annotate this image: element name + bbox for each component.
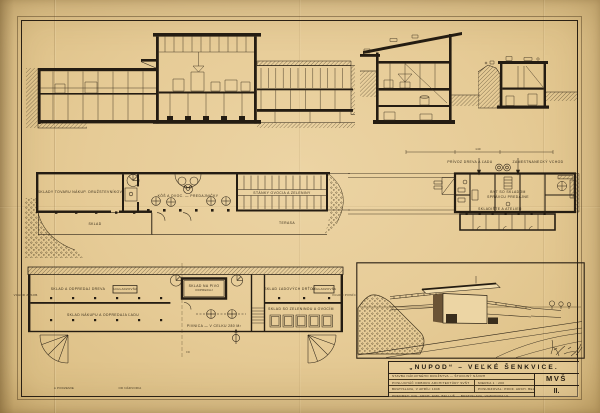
label-beer-2: ODPREDAJ — [195, 288, 213, 292]
label-level: ±0 — [186, 350, 190, 354]
section-b-ground-right — [546, 92, 578, 101]
caption-b: OD NÁDVORIA — [119, 386, 142, 390]
label-room-tr: SKLAD ĽADOVÝCH DRŤOV — [264, 287, 316, 291]
cross-section-b — [478, 50, 578, 120]
caption-a: A PODZEMIE — [54, 386, 74, 390]
label-stalls: STÁNKY OVOCIA A ZELENINY — [253, 191, 310, 195]
section-left-wing-interior — [40, 72, 158, 121]
label-dimension: 140 — [475, 147, 481, 151]
trees — [549, 301, 570, 309]
title-block-table: STAVBA NÁKUPNÉHO DRUŽSTVA — ŠTUDIJNÝ NÁV… — [389, 373, 535, 397]
title-block: „NUPOD“ – VEĽKÉ ŠENKVICE. STAVBA NÁKUPNÉ… — [388, 361, 579, 397]
label-beer-1: SKLAD NA PIVO — [189, 284, 220, 288]
label-flat-1: BYT SO SKLADOM — [490, 190, 526, 194]
detail-plan-stalls — [460, 213, 555, 230]
tb-row3-left: BRATISLAVA, V APRÍLI 1948 — [389, 386, 475, 392]
basement-stalls-right — [270, 315, 333, 327]
label-right-entry: VCHOD PIVNÍC — [332, 293, 356, 297]
basement-corridor — [252, 275, 265, 332]
fan-stair-left — [40, 335, 68, 363]
label-cellar: PIVNICA — V CELKU 280 M² — [187, 324, 241, 328]
sheet-mark: MVŠ — [534, 373, 579, 386]
label-staff-entry: ZAMESTNANECKÝ VCHOD — [513, 160, 564, 164]
label-storeroom: SKLADY TOVARU NÁKUP. DRUŽSTEVNÍKOV — [38, 190, 123, 194]
embankment-pebbles — [25, 198, 83, 258]
ground-floor-plan — [25, 146, 350, 258]
label-sklad: SKLAD — [88, 222, 101, 226]
detail-plan-end-wall — [575, 174, 579, 213]
label-room-bl: SKLAD NÁKUPU A ODPREDAJA ĽADU — [67, 313, 139, 317]
basement-top-wall — [28, 267, 343, 275]
detail-plan — [348, 140, 580, 264]
hill — [358, 295, 424, 354]
tb-row2-right: MIERKA 1 : 200 — [475, 381, 534, 385]
section-right-wing — [257, 61, 355, 123]
label-left-entry: VCHOD ZÁSOB. — [14, 293, 39, 297]
label-terasa: TERASA — [279, 221, 295, 225]
ground-mound — [478, 65, 500, 108]
paper-edge-shadow — [0, 0, 14, 413]
label-box-tr: SCHLADZOVŇA — [312, 287, 336, 291]
basement-cellar — [184, 303, 246, 319]
tb-row2-left: POSLUCHÁČ ODBORU ARCHITEKTÚRY SVŠT — [389, 380, 475, 386]
tb-row3-right: POSUDZOVAL: PROF. ARCH. BELLUŠ — [475, 387, 534, 391]
roof-slab — [363, 32, 462, 54]
right-wing — [487, 301, 561, 318]
plan-terrace — [38, 174, 350, 235]
cross-section-a — [360, 24, 480, 128]
drawing-sheet: SKLADY TOVARU NÁKUP. DRUŽSTEVNÍKOV SKLAD… — [0, 0, 600, 413]
tb-row1: STAVBA NÁKUPNÉHO DRUŽSTVA — ŠTUDIJNÝ NÁV… — [389, 374, 485, 378]
perspective-view — [356, 262, 585, 359]
central-block — [422, 276, 500, 324]
label-flat-2: SPRÁVCU PREDAJNE — [487, 195, 529, 199]
label-box-tl: SCHLADZOVŇA — [113, 287, 137, 291]
label-hall: KÔŠ A OVOC. — PREDAJNIČKY — [158, 194, 219, 198]
plan-market-hall — [147, 174, 230, 211]
longitudinal-section — [25, 22, 355, 142]
section-hall-block — [141, 33, 261, 124]
tb-row4: PREDMET: ING. ARCH. EMIL BELLUŠ — BRATIS… — [389, 394, 510, 398]
label-room-tl: SKLAD A ODPREDAJ DREVA — [51, 287, 106, 291]
label-delivery: PRÍVOZ DREVA A ĽADU — [447, 160, 492, 164]
fan-stair-right — [308, 335, 336, 363]
label-atelier: SKLADIŠTE A ATELIER — [478, 207, 522, 211]
title-block-mark-box: MVŠ II. — [534, 373, 579, 397]
foreground-plants — [551, 340, 582, 356]
label-room-br: SKLAD SO ZELENINOU A OVOCÍM — [268, 307, 334, 311]
plan-spiral-stair — [125, 174, 139, 211]
sheet-number: II. — [534, 386, 579, 397]
